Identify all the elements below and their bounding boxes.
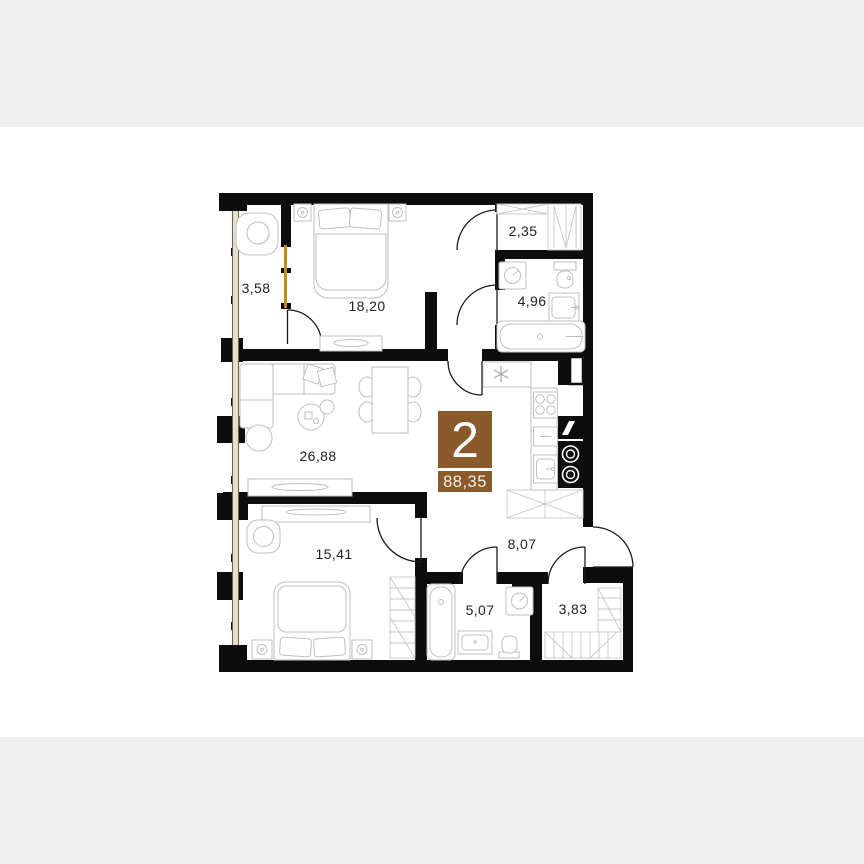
dining-table-icon — [359, 367, 421, 433]
bedroom-second-wardrobe-hatch — [390, 577, 415, 658]
room-label-walkin-closet: 2,35 — [509, 223, 538, 239]
room-label-closet: 3,83 — [559, 601, 588, 617]
kitchen-cabinet-icon — [534, 427, 558, 446]
toilet2-icon — [499, 636, 519, 658]
bathtub-icon — [497, 321, 585, 352]
room-label-bedroom-master: 18,20 — [348, 298, 385, 314]
door-balcony — [288, 310, 322, 344]
door-walkin-closet — [457, 210, 497, 250]
total-area-value: 88,35 — [443, 473, 487, 491]
door-entrance — [593, 527, 633, 567]
room-label-balcony: 3,58 — [242, 280, 271, 296]
door-master-bath — [457, 285, 497, 325]
bed2-icon — [252, 582, 372, 660]
apartment-badge: 2 88,35 — [438, 411, 492, 492]
sink2-icon — [458, 631, 492, 654]
tv-console-icon — [248, 479, 352, 496]
armchair2-icon — [247, 520, 280, 553]
bathtub2-icon — [427, 584, 455, 660]
toilet-icon — [554, 262, 576, 288]
room-label-hallway: 8,07 — [508, 536, 537, 552]
sink-icon — [549, 293, 579, 322]
door-bathroom — [460, 547, 497, 584]
rooms-count-number: 2 — [451, 412, 479, 468]
stove-icon — [534, 392, 558, 418]
room-label-living-kitchen: 26,88 — [299, 448, 336, 464]
room-label-bedroom-second: 15,41 — [315, 546, 352, 562]
bed-icon — [294, 204, 406, 298]
dresser-icon — [320, 336, 382, 351]
door-master-bedroom — [448, 361, 482, 395]
washer2-icon — [506, 587, 533, 615]
hallway-wardrobe-hatch — [507, 490, 583, 518]
room-label-bathroom-master: 4,96 — [518, 293, 547, 309]
armchair-icon — [236, 213, 278, 255]
coffee-table-icon — [298, 400, 334, 430]
exterior-window — [232, 211, 239, 645]
floorplan-page: 3,58 18,20 2,35 4,96 26,88 15,41 8,07 5,… — [0, 0, 864, 864]
room-label-bathroom: 5,07 — [466, 602, 495, 618]
closet-hatch-bottom — [545, 632, 621, 658]
door-closet — [548, 547, 585, 584]
fridge-icon — [483, 362, 531, 387]
door-bedroom-second — [377, 518, 421, 562]
kitchen-sink-icon — [534, 455, 558, 483]
washing-machine-icon — [499, 262, 526, 289]
floor-plan: 3,58 18,20 2,35 4,96 26,88 15,41 8,07 5,… — [0, 0, 864, 864]
bedroom2-console-icon — [262, 506, 370, 522]
closet-hatch-right — [598, 588, 621, 632]
